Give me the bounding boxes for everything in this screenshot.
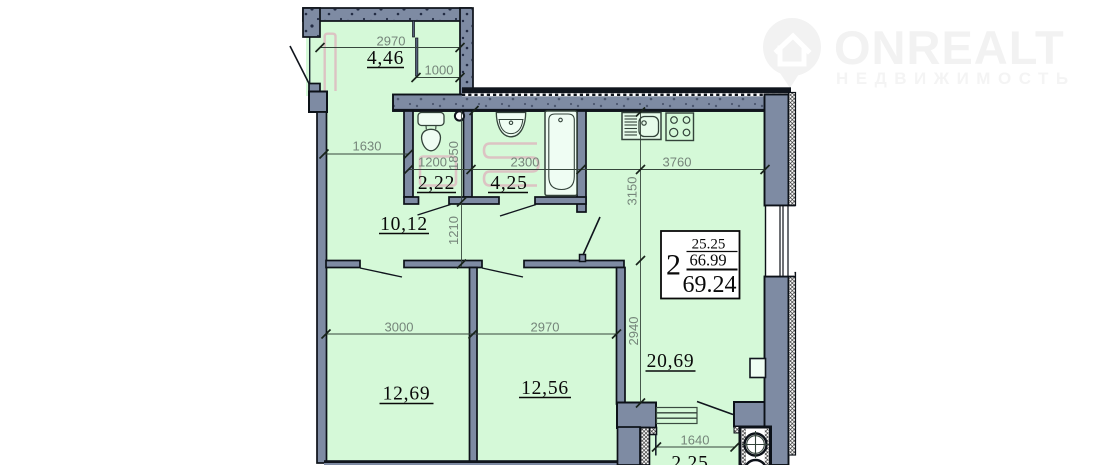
svg-text:12,69: 12,69 bbox=[383, 384, 431, 405]
svg-text:1200: 1200 bbox=[418, 155, 447, 170]
svg-text:12,56: 12,56 bbox=[521, 378, 569, 399]
svg-text:4,46: 4,46 bbox=[367, 48, 404, 69]
svg-text:4,25: 4,25 bbox=[490, 173, 527, 194]
svg-text:1850: 1850 bbox=[446, 141, 461, 170]
svg-text:НЕДВИЖИМОСТЬ: НЕДВИЖИМОСТЬ bbox=[836, 69, 1076, 88]
svg-text:1000: 1000 bbox=[425, 63, 454, 78]
svg-text:1640: 1640 bbox=[681, 433, 710, 448]
svg-text:20,69: 20,69 bbox=[647, 351, 695, 372]
svg-text:2,25: 2,25 bbox=[671, 453, 708, 465]
svg-text:69.24: 69.24 bbox=[683, 272, 737, 298]
svg-text:2,22: 2,22 bbox=[418, 173, 455, 194]
svg-text:2970: 2970 bbox=[377, 34, 406, 49]
svg-text:3760: 3760 bbox=[663, 155, 692, 170]
svg-text:2940: 2940 bbox=[626, 317, 641, 346]
svg-text:1210: 1210 bbox=[446, 216, 461, 245]
svg-text:3150: 3150 bbox=[625, 177, 640, 206]
svg-text:3000: 3000 bbox=[385, 320, 414, 335]
svg-text:2: 2 bbox=[666, 249, 681, 282]
svg-text:ONREALT: ONREALT bbox=[834, 21, 1065, 74]
svg-text:2300: 2300 bbox=[511, 155, 540, 170]
svg-text:66.99: 66.99 bbox=[689, 251, 726, 270]
svg-text:10,12: 10,12 bbox=[380, 214, 428, 235]
svg-text:2970: 2970 bbox=[531, 320, 560, 335]
svg-text:1630: 1630 bbox=[353, 139, 382, 154]
